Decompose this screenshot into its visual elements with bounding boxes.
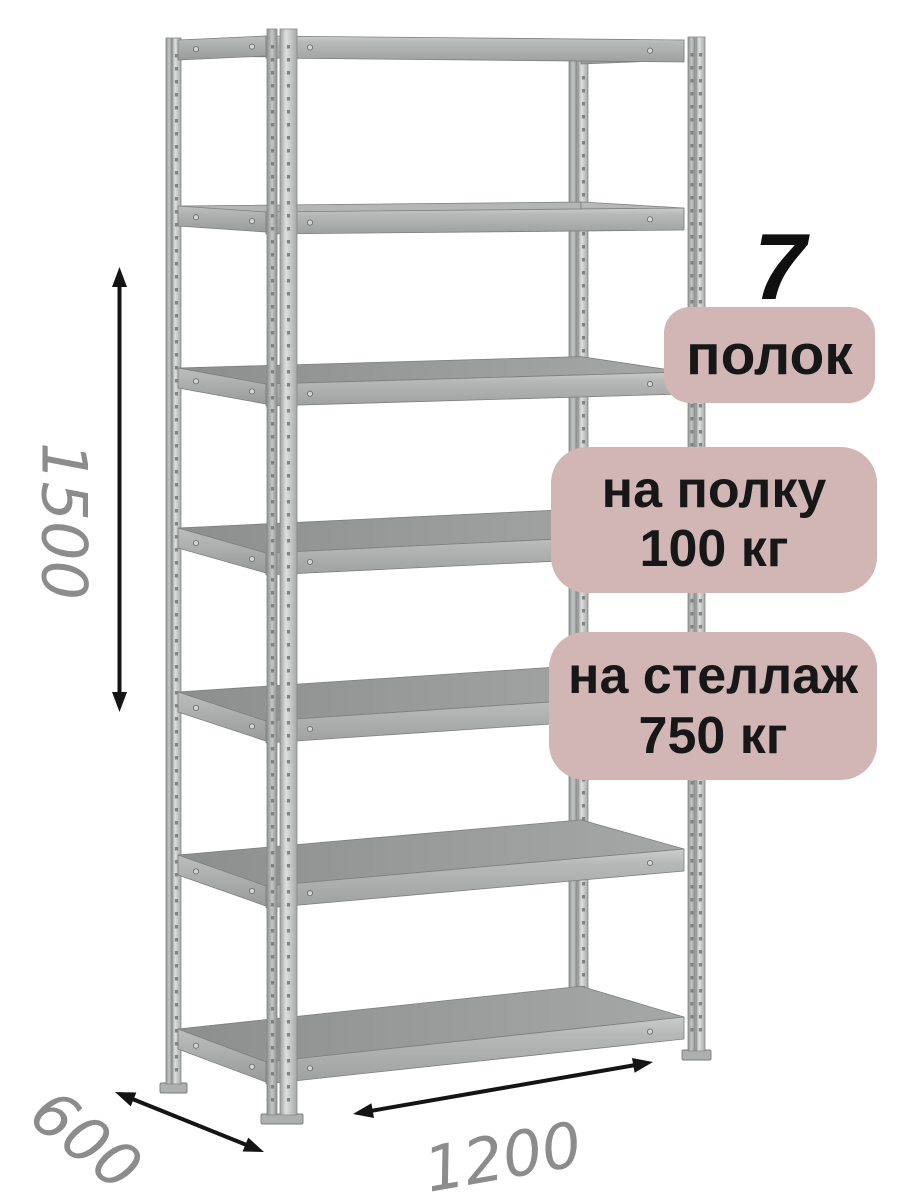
shelf-1 <box>178 36 684 64</box>
shelf-screw <box>193 1043 198 1048</box>
shelf-front-face <box>266 208 684 234</box>
shelf-screw <box>249 724 254 729</box>
shelf-screw <box>193 541 198 546</box>
shelf-screw <box>193 379 198 384</box>
post-foot <box>261 1114 303 1124</box>
badge-rack-load: на стеллаж 750 кг <box>549 632 877 780</box>
shelf-screw <box>307 559 312 564</box>
shelf-screw <box>193 215 198 220</box>
shelf-screw <box>249 44 254 49</box>
badge-shelf-load-line2: 100 кг <box>640 520 789 579</box>
shelf-screw <box>193 47 198 52</box>
shelf-screw <box>249 1064 254 1069</box>
shelf-screw <box>647 48 652 53</box>
height-dimension-label: 1500 <box>28 442 101 600</box>
post-back-left <box>160 38 187 1093</box>
shelf-screw <box>193 869 198 874</box>
post-foot <box>682 1050 711 1060</box>
badge-shelf-count: полок <box>664 307 875 403</box>
badge-shelf-count-label: полок <box>686 322 853 388</box>
post-front-left <box>261 29 303 1124</box>
shelf-screw <box>307 726 312 731</box>
shelf-2 <box>178 202 684 234</box>
shelf-6 <box>178 820 684 908</box>
width-dimension-label: 1200 <box>419 1107 587 1200</box>
shelf-screw <box>307 45 312 50</box>
shelf-screw <box>647 1029 652 1034</box>
shelf-screw <box>249 218 254 223</box>
shelf-screw <box>249 389 254 394</box>
shelf-screw <box>307 391 312 396</box>
shelf-count-number: 7 <box>710 220 850 320</box>
post-face <box>166 38 172 1084</box>
badge-shelf-load: на полку 100 кг <box>551 447 877 593</box>
shelf-screw <box>647 860 652 865</box>
shelf-screw <box>249 888 254 893</box>
post-face <box>280 29 297 1115</box>
shelf-screw <box>307 1066 312 1071</box>
badge-rack-load-line1: на стеллаж <box>568 646 858 706</box>
shelf-screw <box>647 381 652 386</box>
shelf-screw <box>249 556 254 561</box>
post-foot <box>160 1083 187 1093</box>
shelf-screw <box>647 217 652 222</box>
shelf-screw <box>193 705 198 710</box>
shelf-screw <box>307 220 312 225</box>
product-diagram: 15006001200 7 полок на полку 100 кг на с… <box>0 0 900 1200</box>
shelf-screw <box>307 891 312 896</box>
shelf-front-face <box>266 36 684 62</box>
badge-shelf-load-line1: на полку <box>602 461 827 520</box>
shelf-3 <box>178 357 684 406</box>
height-arrow <box>112 267 127 712</box>
badge-rack-load-line2: 750 кг <box>639 706 788 766</box>
post-face <box>267 29 277 1115</box>
shelving-rack-drawing: 15006001200 <box>0 0 900 1200</box>
